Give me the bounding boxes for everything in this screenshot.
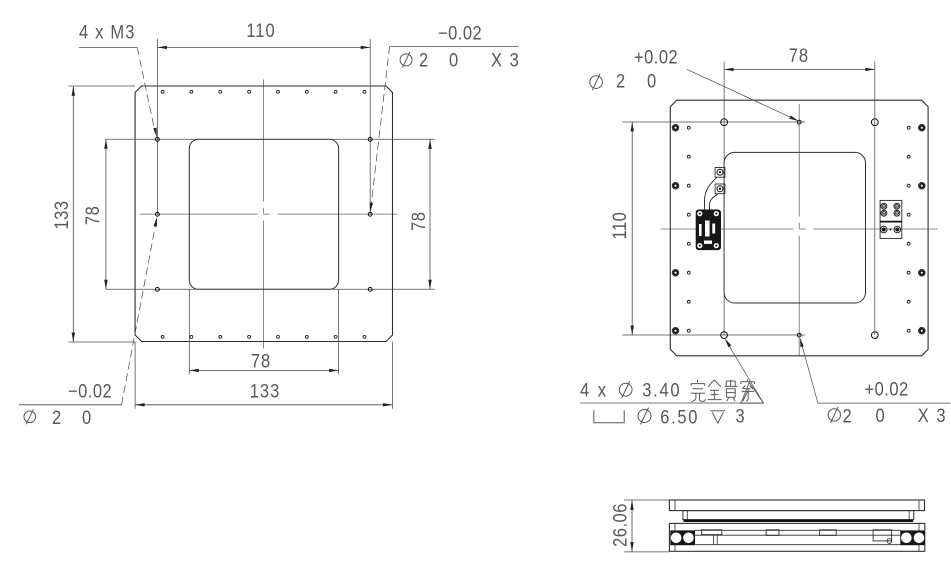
svg-text:26.06: 26.06 (609, 503, 630, 547)
svg-text:2: 2 (843, 405, 852, 426)
svg-text:2: 2 (419, 49, 428, 70)
svg-text:133: 133 (51, 200, 72, 229)
svg-text:2: 2 (616, 71, 625, 92)
svg-text:4 x: 4 x (580, 379, 608, 400)
svg-text:0: 0 (647, 71, 656, 92)
svg-text:3: 3 (736, 406, 745, 427)
svg-text:3.40: 3.40 (642, 379, 681, 400)
svg-text:78: 78 (82, 206, 103, 225)
svg-text:4 x M3: 4 x M3 (79, 22, 136, 43)
svg-text:78: 78 (789, 45, 809, 66)
svg-text:X 3: X 3 (918, 405, 947, 426)
svg-text:+0.02: +0.02 (865, 378, 909, 399)
svg-text:110: 110 (609, 212, 630, 240)
svg-text:−0.02: −0.02 (438, 22, 482, 43)
svg-text:+0.02: +0.02 (634, 46, 678, 67)
svg-text:78: 78 (408, 212, 429, 231)
svg-text:0: 0 (82, 407, 91, 428)
svg-text:6.50: 6.50 (660, 406, 699, 427)
svg-text:−0.02: −0.02 (68, 380, 112, 401)
svg-text:133: 133 (250, 380, 281, 401)
svg-text:X 3: X 3 (491, 49, 520, 70)
svg-text:78: 78 (251, 350, 271, 371)
svg-text:0: 0 (449, 49, 458, 70)
svg-text:0: 0 (876, 405, 885, 426)
svg-text:110: 110 (246, 20, 275, 41)
svg-text:2: 2 (52, 407, 61, 428)
